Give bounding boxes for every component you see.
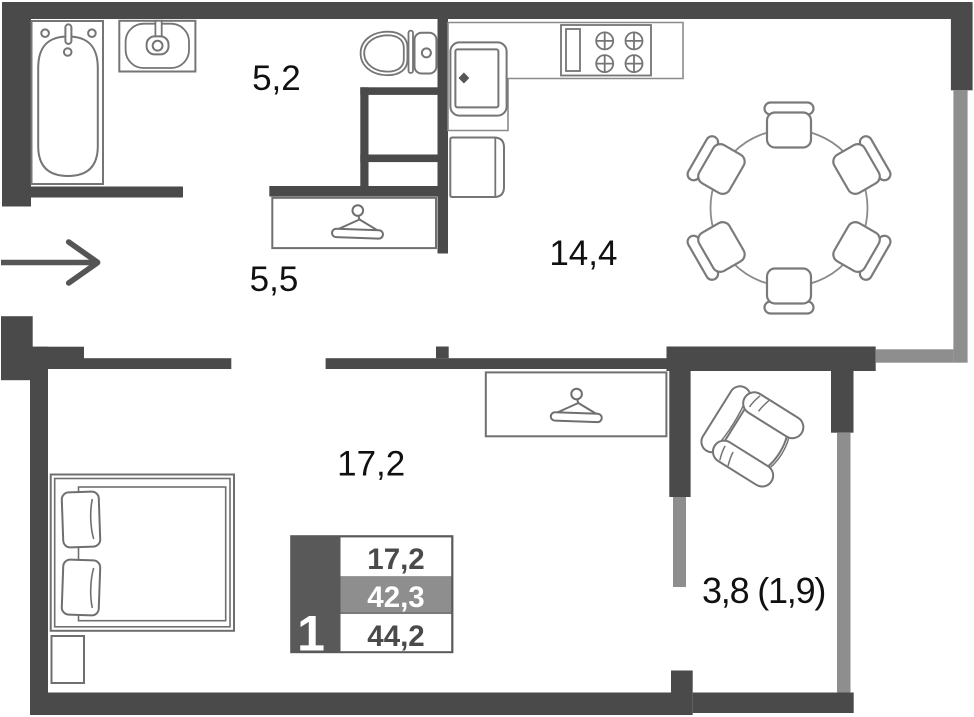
svg-text:14,4: 14,4 bbox=[549, 234, 617, 273]
svg-text:1: 1 bbox=[297, 606, 325, 662]
svg-text:17,2: 17,2 bbox=[337, 445, 405, 484]
svg-text:17,2: 17,2 bbox=[367, 543, 424, 576]
svg-text:5,2: 5,2 bbox=[252, 59, 301, 98]
svg-text:5,5: 5,5 bbox=[250, 260, 299, 299]
svg-text:42,3: 42,3 bbox=[367, 581, 424, 614]
svg-text:3,8 (1,9): 3,8 (1,9) bbox=[702, 570, 825, 611]
svg-text:44,2: 44,2 bbox=[367, 620, 424, 653]
